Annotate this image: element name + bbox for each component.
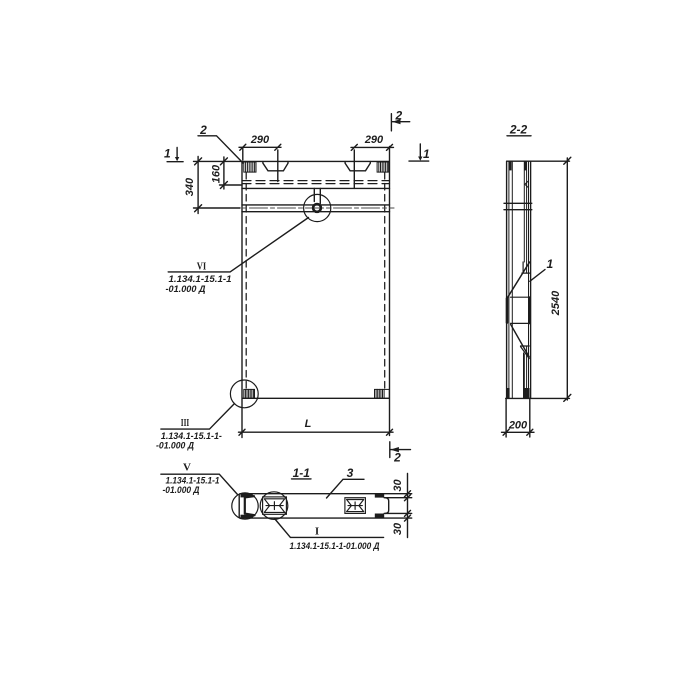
svg-text:2: 2 (394, 109, 402, 123)
svg-text:1.134.1-15.1-1-01.000 Д: 1.134.1-15.1-1-01.000 Д (290, 541, 380, 552)
svg-text:160: 160 (211, 164, 223, 183)
svg-text:-01.000 Д: -01.000 Д (166, 284, 206, 295)
svg-text:2: 2 (393, 451, 401, 465)
svg-text:30: 30 (392, 522, 404, 535)
svg-text:290: 290 (364, 134, 384, 146)
svg-text:1-1: 1-1 (293, 466, 311, 480)
svg-text:30: 30 (392, 479, 404, 492)
svg-text:-01.000 Д: -01.000 Д (156, 441, 194, 452)
svg-text:1: 1 (164, 147, 171, 161)
svg-text:3: 3 (347, 466, 354, 480)
svg-text:VI: VI (197, 261, 207, 273)
svg-text:V: V (183, 462, 191, 474)
svg-text:2540: 2540 (550, 290, 562, 316)
svg-text:L: L (305, 418, 312, 430)
svg-text:1: 1 (547, 257, 554, 271)
svg-text:-01.000 Д: -01.000 Д (163, 485, 200, 496)
svg-text:2: 2 (199, 123, 207, 137)
svg-text:290: 290 (250, 134, 270, 146)
svg-text:200: 200 (508, 420, 528, 432)
svg-text:340: 340 (184, 177, 196, 196)
svg-text:2-2: 2-2 (509, 123, 528, 137)
svg-text:I: I (315, 526, 319, 538)
svg-text:1: 1 (423, 147, 430, 161)
svg-text:III: III (181, 417, 190, 429)
